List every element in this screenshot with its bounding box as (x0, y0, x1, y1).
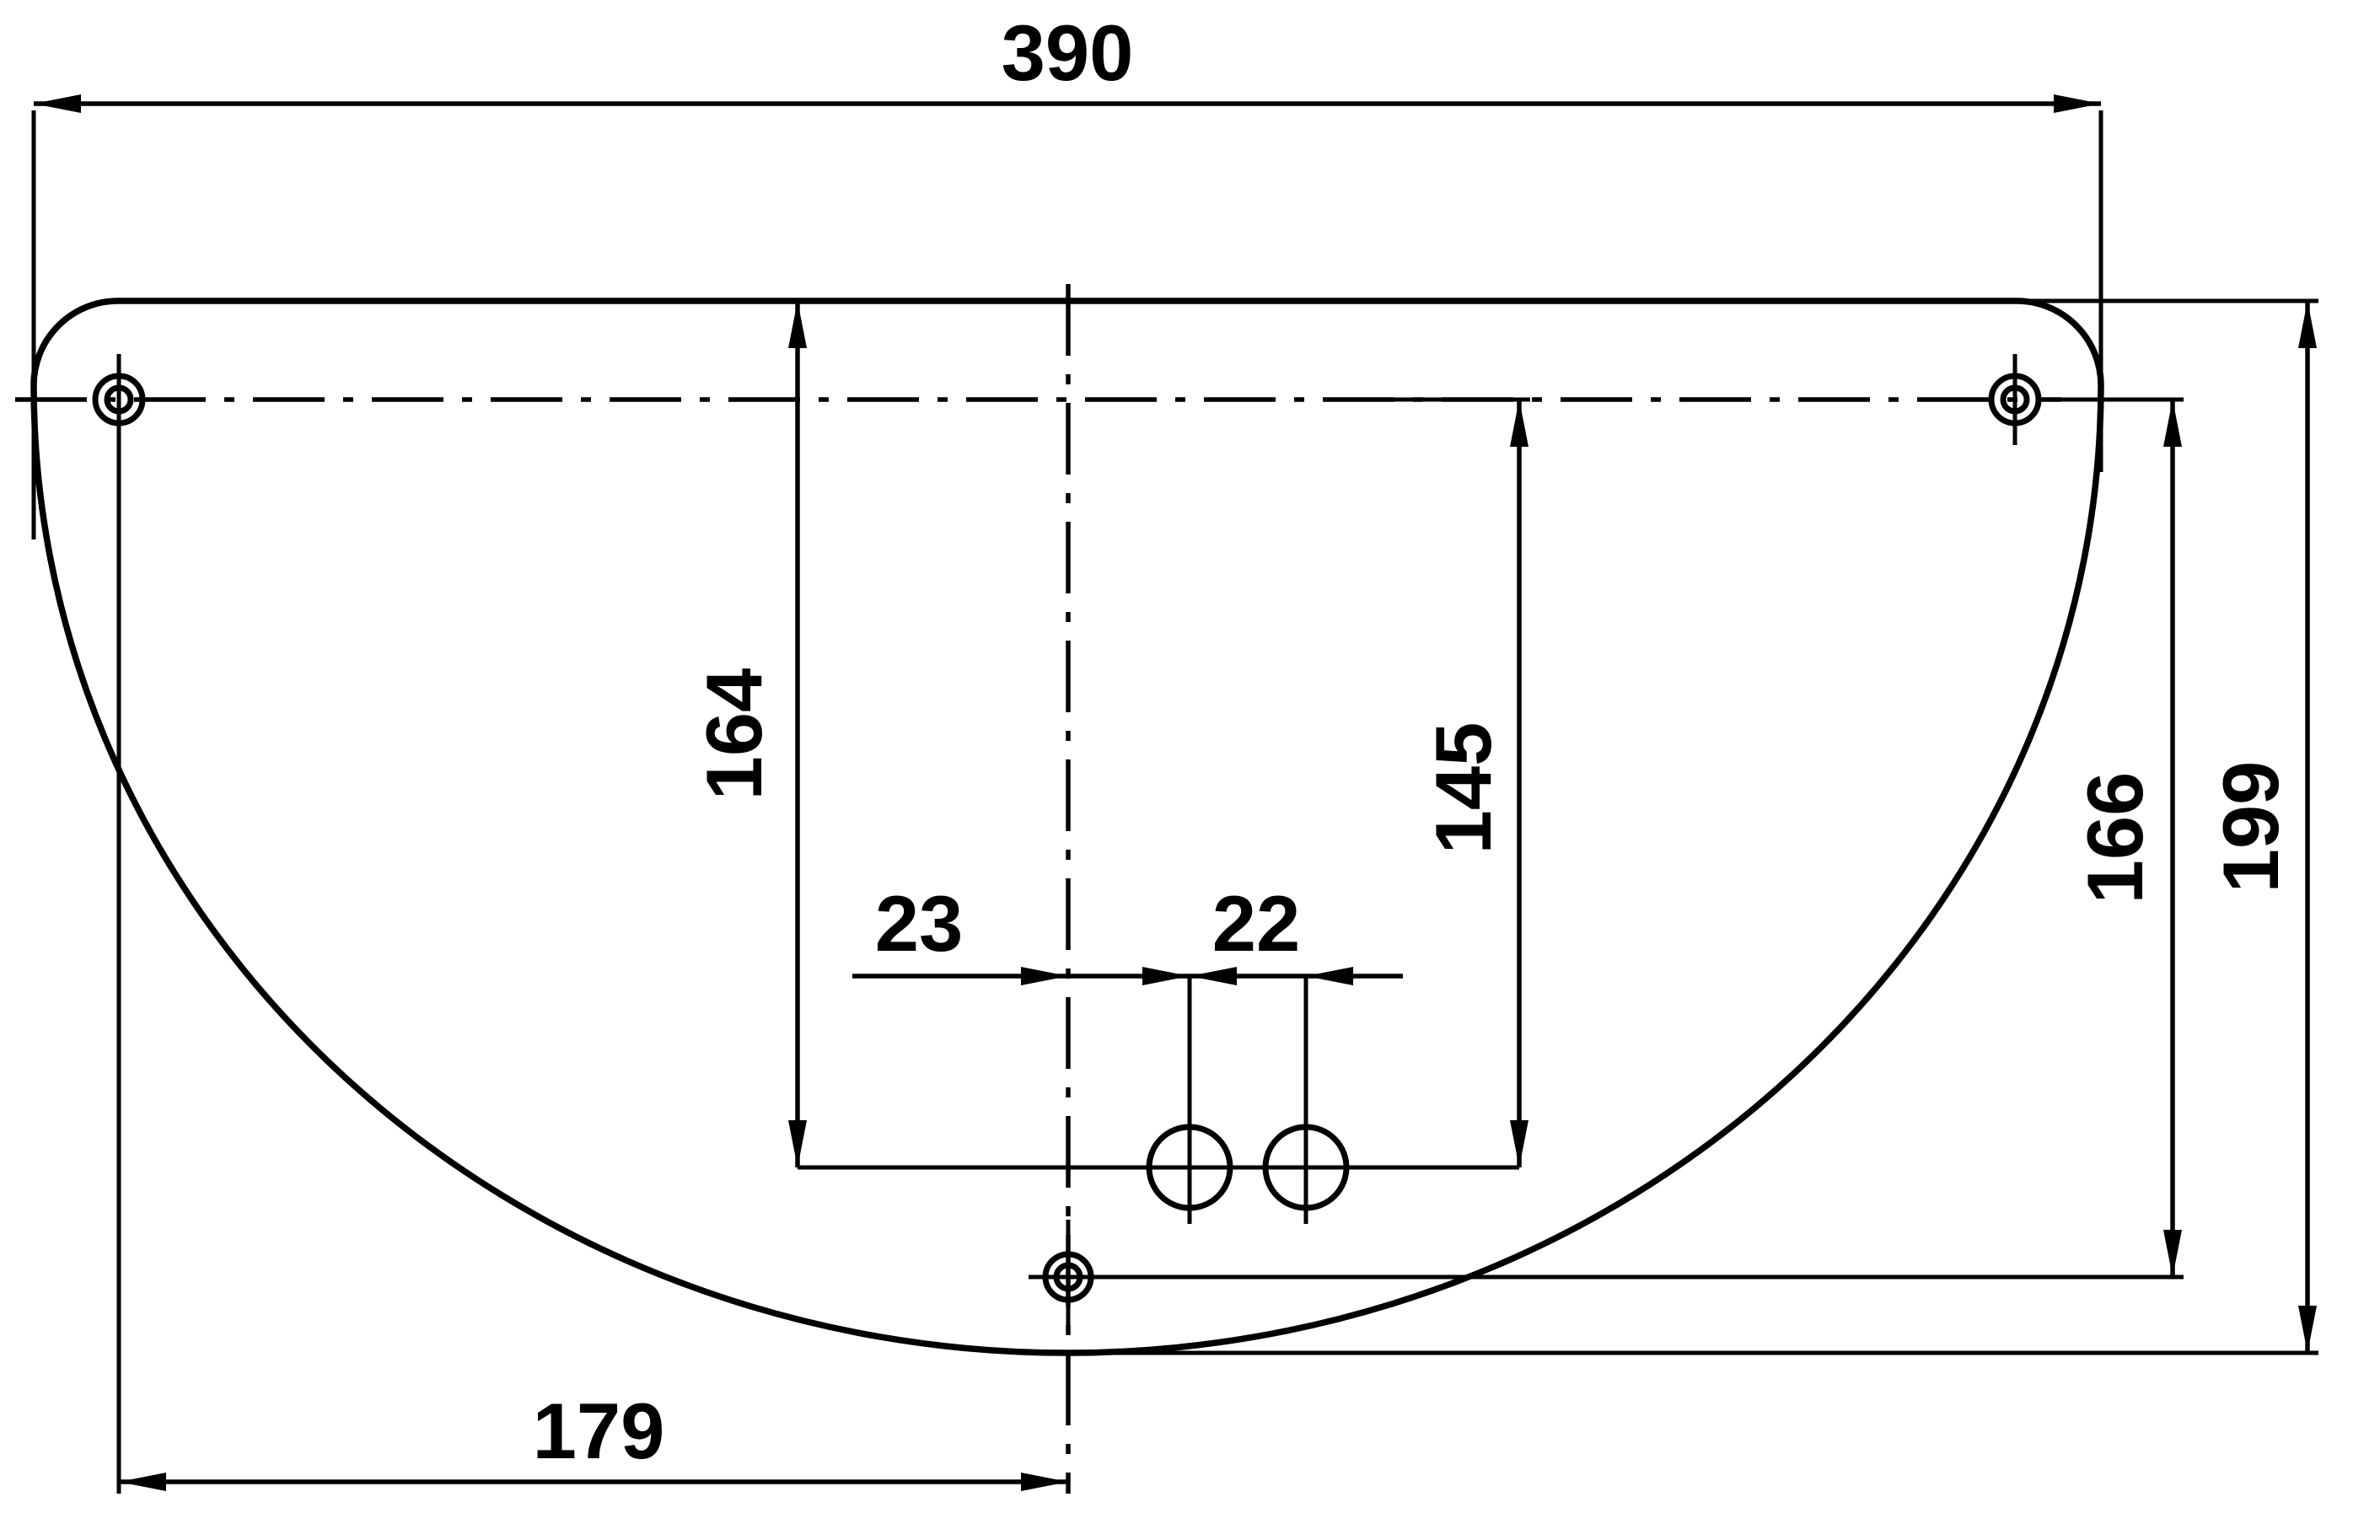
arrowhead-up (1510, 400, 1528, 447)
arrowhead-up (2298, 301, 2317, 348)
small-hole-left (1149, 976, 1230, 1224)
small-hole-right (1265, 976, 1346, 1224)
arrowhead-down (2298, 1306, 2317, 1353)
dim-label-164: 164 (690, 668, 778, 801)
arrowhead-right (1021, 1473, 1068, 1491)
arrowhead-down (788, 1120, 807, 1167)
dim-label-166: 166 (2071, 772, 2159, 904)
technical-drawing-page: 390 164 145 23 22 166 (0, 0, 2380, 1540)
mounting-hole-right (1991, 354, 2039, 445)
arrowhead-up (2163, 400, 2182, 447)
dim-166: 166 (1029, 400, 2184, 1277)
dim-label-179: 179 (533, 1387, 665, 1475)
dim-label-22: 22 (1212, 879, 1301, 968)
arrowhead-right-at-hole1 (1142, 967, 1190, 985)
arrowhead-left-at-hole2 (1306, 967, 1353, 985)
centerlines (15, 284, 2184, 1494)
dim-23-22: 23 22 (852, 879, 1403, 985)
arrowhead-down (1510, 1120, 1528, 1167)
dim-label-23: 23 (875, 879, 964, 968)
arrowhead-right-at-centerline (1021, 967, 1068, 985)
dim-164: 164 (690, 301, 807, 1167)
dim-label-199: 199 (2206, 761, 2295, 893)
arrowhead-left (34, 94, 81, 113)
arrowhead-left (119, 1473, 166, 1491)
arrowhead-right (2054, 94, 2101, 113)
arrowhead-up (788, 301, 807, 348)
arrowhead-left-at-hole1 (1190, 967, 1237, 985)
arrowhead-down (2163, 1230, 2182, 1277)
dim-145: 145 (1349, 400, 1530, 1167)
dim-label-145: 145 (1419, 722, 1507, 855)
technical-drawing: 390 164 145 23 22 166 (0, 0, 2380, 1540)
dim-label-390: 390 (1002, 8, 1134, 97)
